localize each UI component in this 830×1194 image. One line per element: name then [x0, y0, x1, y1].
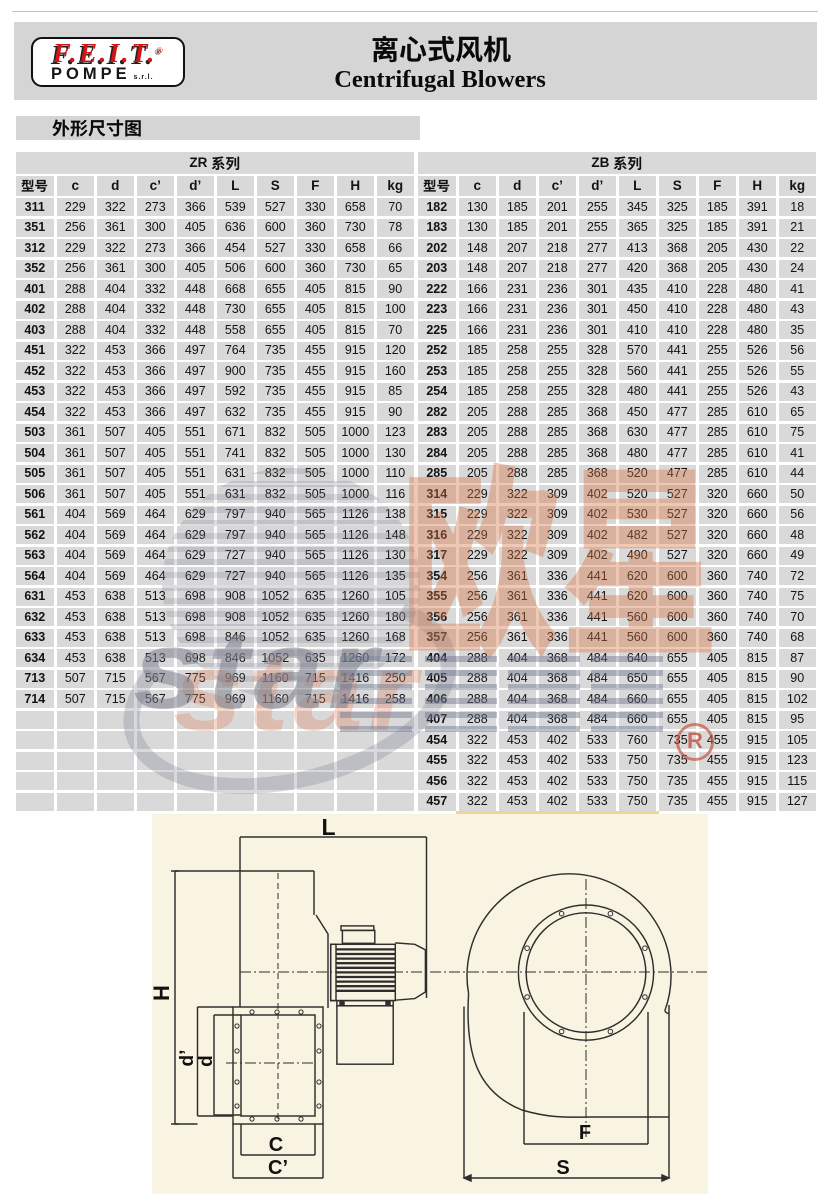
svg-text:S: S: [556, 1157, 569, 1179]
svg-text:d’: d’: [177, 1050, 198, 1067]
svg-text:L: L: [321, 814, 335, 840]
svg-text:F: F: [579, 1122, 591, 1144]
svg-text:d: d: [196, 1055, 217, 1067]
svg-text:C’: C’: [268, 1157, 288, 1179]
svg-text:H: H: [152, 985, 174, 1001]
svg-text:C: C: [269, 1134, 283, 1156]
